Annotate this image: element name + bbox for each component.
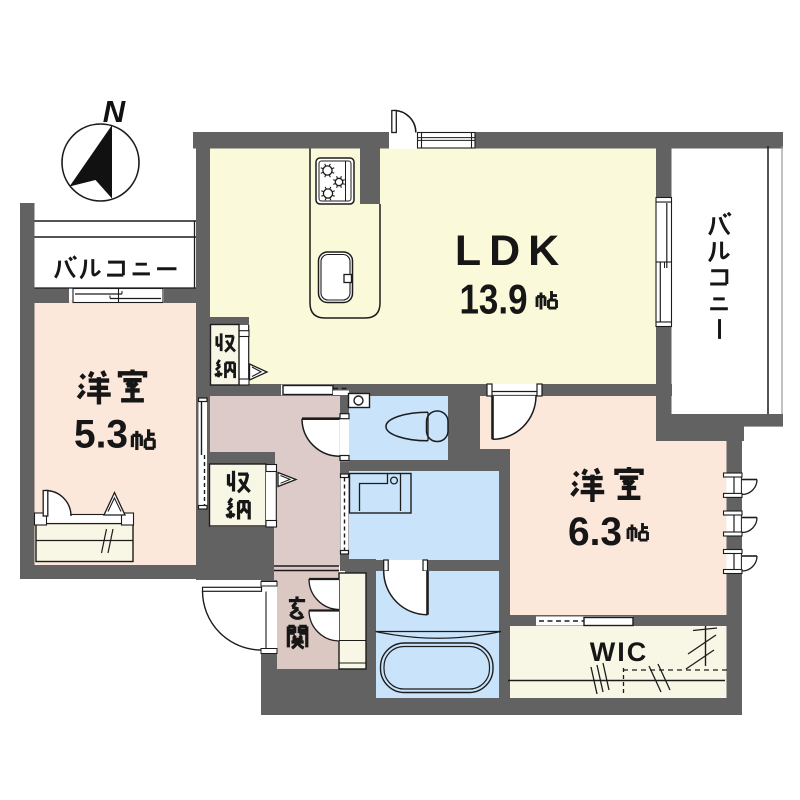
svg-text:5.3: 5.3	[74, 413, 128, 457]
svg-text:13.9: 13.9	[460, 276, 528, 323]
svg-text:6.3: 6.3	[568, 510, 622, 554]
svg-text:WIC: WIC	[590, 637, 648, 667]
svg-text:N: N	[103, 94, 126, 129]
svg-text:LDK: LDK	[455, 227, 567, 275]
